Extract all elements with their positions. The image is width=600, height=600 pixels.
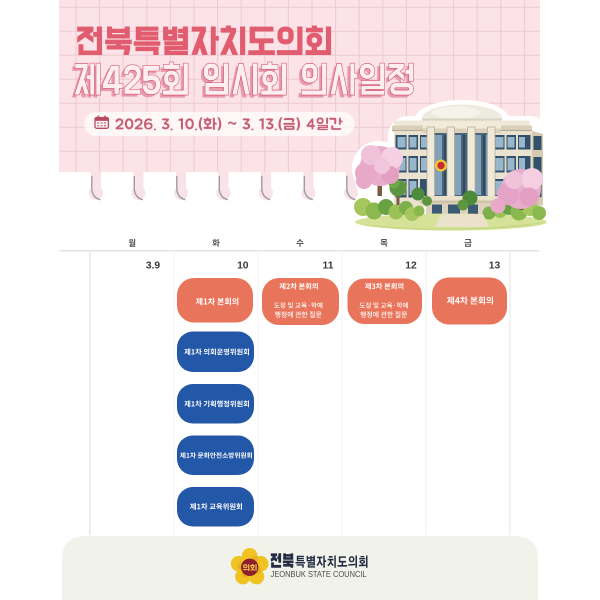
svg-text:JEONBUK STATE COUNCIL: JEONBUK STATE COUNCIL bbox=[271, 569, 367, 579]
svg-text:11: 11 bbox=[323, 260, 334, 271]
svg-text:12: 12 bbox=[405, 260, 417, 271]
svg-text:13: 13 bbox=[489, 260, 501, 271]
svg-text:10: 10 bbox=[237, 260, 249, 271]
svg-text:3.9: 3.9 bbox=[146, 260, 161, 271]
